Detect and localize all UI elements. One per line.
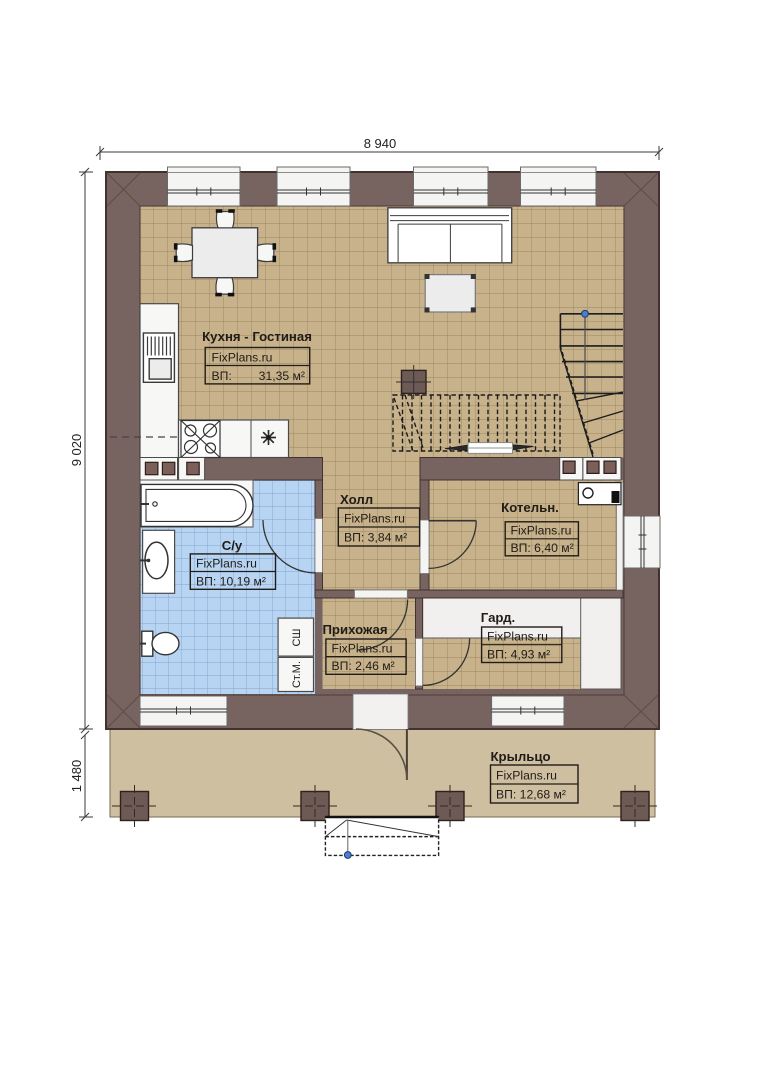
svg-text:9 020: 9 020 [69, 434, 84, 467]
svg-text:Холл: Холл [340, 492, 373, 507]
svg-text:8 940: 8 940 [364, 136, 397, 151]
svg-text:FixPlans.ru: FixPlans.ru [496, 769, 557, 783]
svg-text:FixPlans.ru: FixPlans.ru [344, 512, 405, 526]
svg-text:Гард.: Гард. [481, 610, 515, 625]
svg-text:ВП:: ВП: [212, 369, 232, 383]
svg-text:Кухня - Гостиная: Кухня - Гостиная [202, 329, 312, 344]
svg-text:ВП: 12,68 м²: ВП: 12,68 м² [496, 788, 566, 802]
svg-text:FixPlans.ru: FixPlans.ru [196, 557, 257, 571]
svg-text:Ст.М.: Ст.М. [291, 661, 303, 688]
svg-text:СШ: СШ [291, 628, 303, 646]
svg-text:FixPlans.ru: FixPlans.ru [212, 351, 273, 365]
svg-text:С/у: С/у [222, 538, 243, 553]
svg-text:Прихожая: Прихожая [322, 622, 387, 637]
svg-text:ВП: 6,40 м²: ВП: 6,40 м² [511, 541, 574, 555]
svg-text:ВП: 4,93 м²: ВП: 4,93 м² [487, 648, 550, 662]
svg-text:FixPlans.ru: FixPlans.ru [332, 642, 393, 656]
svg-text:31,35 м²: 31,35 м² [259, 369, 305, 383]
svg-text:1 480: 1 480 [69, 760, 84, 793]
svg-text:FixPlans.ru: FixPlans.ru [487, 630, 548, 644]
svg-text:ВП: 10,19 м²: ВП: 10,19 м² [196, 575, 266, 589]
svg-text:ВП: 2,46 м²: ВП: 2,46 м² [332, 659, 395, 673]
svg-text:Котельн.: Котельн. [501, 500, 559, 515]
svg-text:ВП: 3,84 м²: ВП: 3,84 м² [344, 531, 407, 545]
svg-text:Крыльцо: Крыльцо [491, 749, 551, 764]
svg-text:FixPlans.ru: FixPlans.ru [511, 524, 572, 538]
